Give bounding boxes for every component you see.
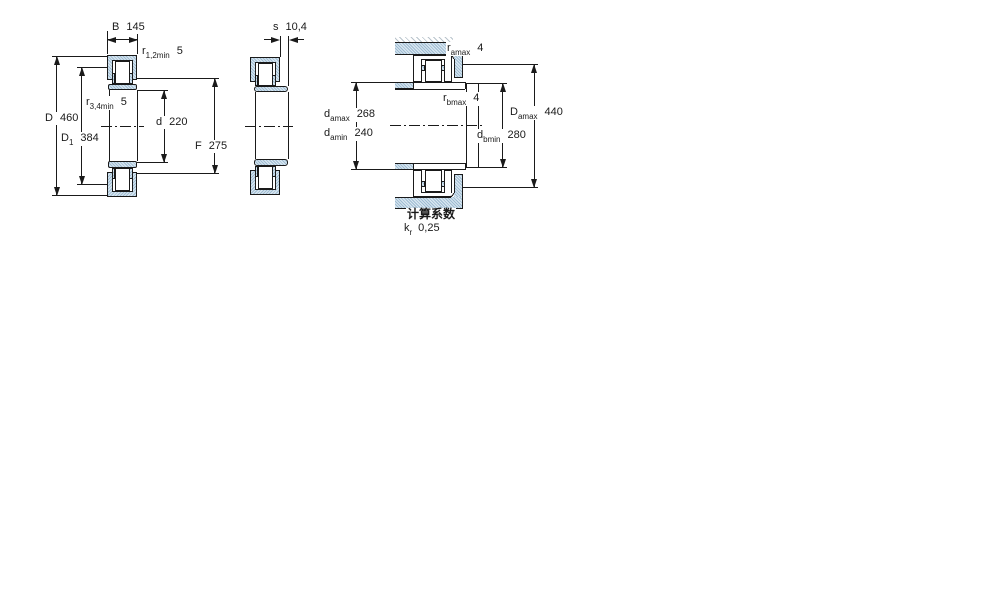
dim-ramax-label: ramax4 [446, 42, 484, 56]
dim-D1-label: D1384 [60, 132, 100, 146]
arrow [500, 83, 506, 92]
roller [115, 168, 130, 191]
cage [255, 166, 259, 177]
arrow [212, 165, 218, 174]
extension-line [137, 31, 138, 54]
inner-ring-stub [395, 163, 414, 170]
arrow [129, 37, 138, 43]
dim-F-line [214, 78, 215, 174]
cage [441, 65, 445, 71]
bearing-technical-drawing: B145 r1,2min5 D460 D1384 r3,4min5 d220 F… [0, 0, 1000, 600]
extension-line [137, 173, 219, 174]
cage [441, 181, 445, 187]
dim-D1-line [81, 67, 82, 184]
inner-ring [108, 84, 137, 91]
dim-D-label: D460 [44, 112, 79, 125]
extension-line [288, 36, 289, 86]
inner-ring [254, 86, 288, 93]
cage [272, 166, 276, 177]
dim-r12-label: r1,2min5 [141, 45, 184, 59]
arrow [531, 179, 537, 188]
arrow [79, 67, 85, 76]
cage [112, 73, 116, 84]
extension-line [52, 195, 107, 196]
cage [272, 75, 276, 86]
arrow [161, 90, 167, 99]
arrow [212, 78, 218, 87]
arrow [353, 82, 359, 91]
dim-damin-label: damin240 [323, 127, 374, 141]
dim-damax-label: damax268 [323, 108, 376, 122]
bearing-section-bottom [250, 166, 280, 195]
cage [255, 75, 259, 86]
dim-r34-label: r3,4min5 [85, 96, 128, 110]
dim-F-label: F275 [194, 140, 228, 153]
bearing-section-bottom [107, 168, 137, 197]
housing-edge [462, 174, 463, 209]
bearing-section-top [250, 57, 280, 86]
arrow [353, 161, 359, 170]
roller [258, 166, 273, 189]
extension-line [107, 31, 108, 54]
roller [115, 61, 130, 84]
bearing-section-top [107, 55, 137, 84]
cage [129, 73, 133, 84]
centerline [101, 126, 144, 127]
calc-heading: 计算系数 [406, 208, 456, 221]
extension-line [137, 78, 219, 79]
dim-rbmax-label: rbmax4 [442, 92, 480, 106]
roller [425, 170, 442, 193]
arrow [79, 176, 85, 185]
roller [425, 60, 442, 83]
centerline [390, 125, 484, 126]
centerline [245, 126, 293, 127]
extension-line [52, 56, 107, 57]
inner-ring-line [414, 82, 466, 83]
cage [421, 181, 425, 187]
arrow [289, 37, 298, 43]
dim-D-line [56, 56, 57, 196]
arrow [161, 154, 167, 163]
dim-da-line [356, 82, 357, 170]
dim-d-label: d220 [155, 116, 188, 129]
housing-shoulder-face [454, 174, 455, 193]
extension-line [462, 64, 538, 65]
dim-db-line [502, 83, 503, 168]
housing-shoulder-face [454, 59, 455, 78]
cage [112, 168, 116, 179]
roller [258, 63, 273, 86]
arrow [271, 37, 280, 43]
dim-Da-line [534, 64, 535, 188]
dim-B-label: B145 [111, 21, 146, 34]
housing-bore-line [395, 197, 451, 198]
cage [129, 168, 133, 179]
bore-line [395, 89, 465, 90]
arrow [107, 37, 116, 43]
inner-ring [254, 159, 288, 166]
dim-s-label: s10,4 [272, 21, 308, 34]
cage [421, 65, 425, 71]
arrow [54, 187, 60, 196]
arrow [54, 56, 60, 65]
dim-dbmin-label: dbmin280 [476, 129, 527, 143]
extension-line [280, 36, 281, 57]
dim-Damax-label: Damax440 [509, 106, 564, 120]
extension-line [462, 187, 538, 188]
kr-factor: kr0,25 [403, 222, 441, 236]
housing-shoulder [454, 174, 462, 197]
arrow [531, 64, 537, 73]
arrow [500, 159, 506, 168]
inner-ring [108, 161, 137, 168]
housing-shoulder [454, 54, 462, 78]
